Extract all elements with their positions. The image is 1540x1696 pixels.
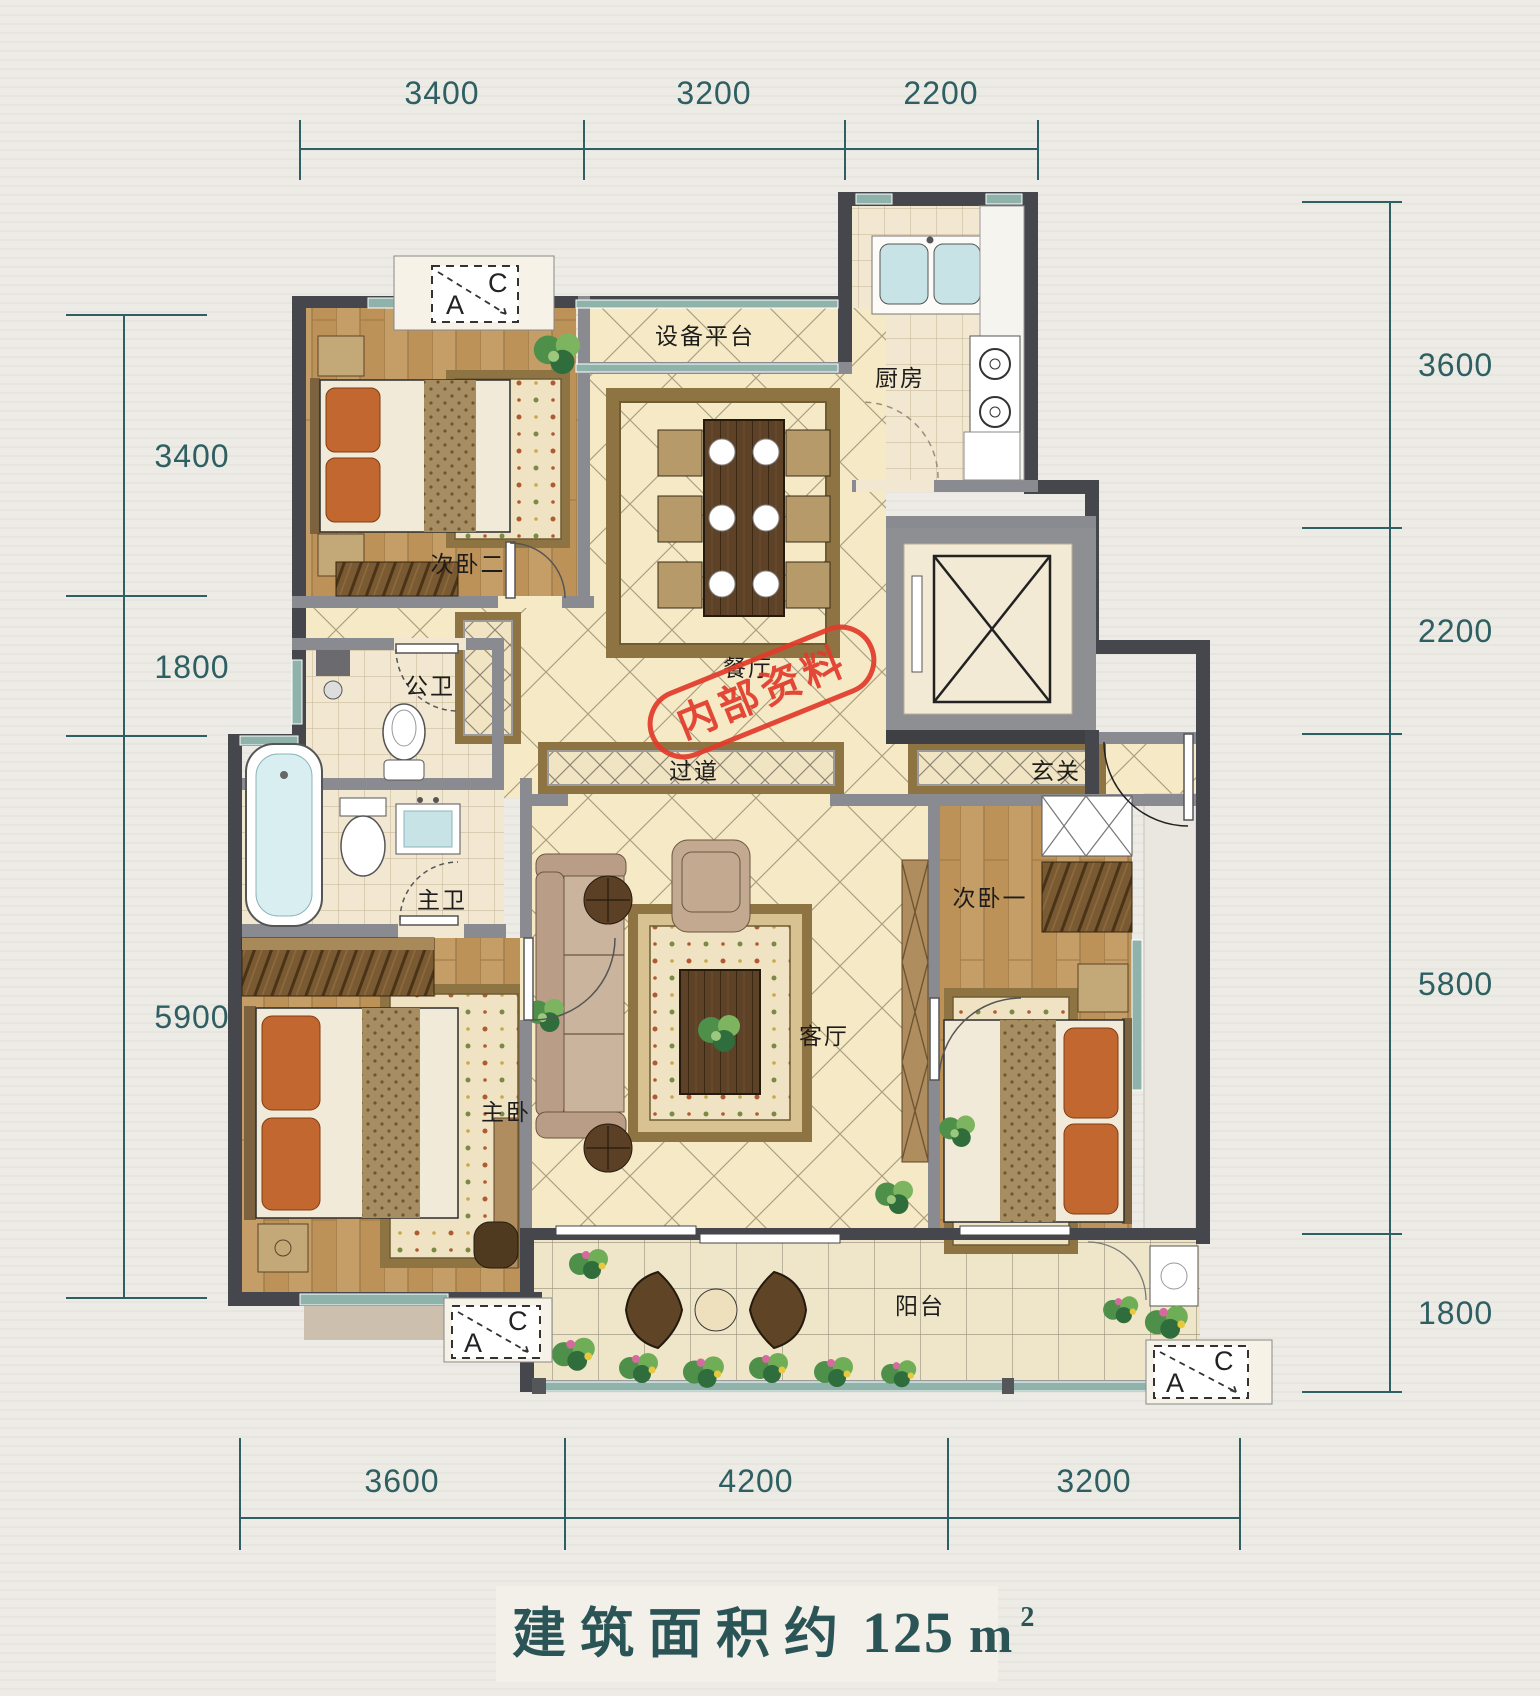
dim-bottom-1: 3600 xyxy=(364,1463,439,1499)
dim-right-2: 2200 xyxy=(1418,613,1493,649)
public-bath-window xyxy=(292,660,302,724)
room-label-bedroom1: 次卧一 xyxy=(953,886,1028,911)
master-window-sill xyxy=(304,1306,446,1340)
toilet-tank xyxy=(340,798,386,816)
ac-marker-top: A C xyxy=(394,256,554,330)
dining-chair xyxy=(658,430,702,476)
corridor-vertical-rug xyxy=(455,612,521,744)
closet xyxy=(1042,796,1132,856)
dim-top-2: 3200 xyxy=(676,75,751,111)
dim-right-3: 5800 xyxy=(1418,966,1493,1002)
shower-icon xyxy=(316,650,350,676)
nightstand xyxy=(318,336,364,376)
ac-letter-c: C xyxy=(508,1306,528,1336)
toilet-tank xyxy=(384,760,424,780)
bedroom2-door-leaf xyxy=(506,542,515,598)
kitchen-window-left xyxy=(856,194,892,204)
ac-marker-bottom-right: A C xyxy=(1146,1340,1272,1404)
room-label-kitchen: 厨房 xyxy=(875,366,925,391)
bed-runner xyxy=(1000,1020,1056,1222)
room-label-master-bedroom: 主卧 xyxy=(481,1100,531,1125)
pillow xyxy=(262,1016,320,1110)
pillow xyxy=(1064,1124,1118,1214)
ac-letter-a: A xyxy=(464,1328,482,1358)
ac-letter-a: A xyxy=(446,290,464,320)
dining-chair xyxy=(786,496,830,542)
dim-left-2: 1800 xyxy=(154,649,229,685)
sliding-door-leaf xyxy=(556,1226,696,1235)
bedroom1-window xyxy=(1132,940,1142,1090)
sink-basin xyxy=(880,244,928,304)
nightstand xyxy=(258,1224,308,1272)
tub-drain-icon xyxy=(280,771,288,779)
room-label-foyer: 玄关 xyxy=(1031,759,1081,784)
dresser xyxy=(1042,862,1132,932)
dining-chair xyxy=(658,562,702,608)
title-sup: 2 xyxy=(1020,1602,1034,1633)
sofa-back xyxy=(536,872,564,1116)
toilet xyxy=(341,816,385,876)
armchair xyxy=(672,840,750,932)
dim-bottom-2: 4200 xyxy=(718,1463,793,1499)
pillow xyxy=(262,1118,320,1210)
platform-window-bottom xyxy=(576,364,838,372)
elevator xyxy=(886,528,1096,730)
dim-top-3: 2200 xyxy=(903,75,978,111)
balcony-post-mid xyxy=(1002,1378,1014,1394)
floor-plan-page: 次卧二 设备平台 厨房 公卫 餐厅 过道 玄关 主卫 主卧 客厅 次卧一 阳台 … xyxy=(0,0,1540,1696)
stool xyxy=(474,1222,518,1268)
wardrobe-top xyxy=(242,938,434,950)
dim-right-4: 1800 xyxy=(1418,1295,1493,1331)
title-number: 125 xyxy=(862,1600,955,1665)
elevator-cab xyxy=(904,544,1072,714)
room-label-bedroom2: 次卧二 xyxy=(431,552,506,577)
bed-headboard xyxy=(310,378,320,534)
ac-letter-a: A xyxy=(1166,1368,1184,1398)
dim-top-1: 3400 xyxy=(404,75,479,111)
nightstand xyxy=(1078,964,1128,1012)
dining-furniture xyxy=(658,420,830,616)
dim-left-1: 3400 xyxy=(154,438,229,474)
ac-letter-c: C xyxy=(488,268,508,298)
sink-basin xyxy=(934,244,980,304)
ac-letter-c: C xyxy=(1214,1346,1234,1376)
balcony-post-left xyxy=(532,1378,546,1394)
bed-runner xyxy=(424,380,476,532)
room-label-public-bath: 公卫 xyxy=(405,674,455,699)
washing-machine xyxy=(1150,1246,1198,1306)
public-bath-door-leaf xyxy=(396,644,458,653)
sliding-door-leaf xyxy=(700,1234,840,1243)
sink-basin xyxy=(404,811,452,847)
toilet xyxy=(383,704,425,760)
elevator-door xyxy=(912,576,922,672)
sliding-door-leaf xyxy=(960,1226,1070,1235)
kitchen-cabinet xyxy=(964,432,1020,480)
room-label-balcony: 阳台 xyxy=(895,1294,945,1319)
room-label-equipment-platform: 设备平台 xyxy=(655,324,755,349)
master-bedroom-window xyxy=(300,1294,448,1305)
dim-left-3: 5900 xyxy=(154,999,229,1035)
dim-bottom-3: 3200 xyxy=(1056,1463,1131,1499)
title-prefix: 建筑面积约 xyxy=(512,1604,852,1664)
master-bedroom-door-leaf xyxy=(524,938,533,1020)
bed-runner xyxy=(362,1008,420,1218)
pillow xyxy=(326,458,380,522)
kitchen-window-right xyxy=(986,194,1022,204)
bay-ledge xyxy=(1144,794,1196,1240)
ac-marker-bottom-left: A C xyxy=(444,1298,552,1362)
room-label-living-room: 客厅 xyxy=(799,1024,849,1049)
title-block: 建筑面积约 125 m 2 xyxy=(496,1586,1034,1682)
stove xyxy=(970,336,1020,440)
room-label-master-bath: 主卫 xyxy=(417,888,467,913)
entry-door-leaf xyxy=(1184,734,1193,820)
balcony-table xyxy=(695,1289,737,1331)
bed-headboard xyxy=(244,1006,256,1220)
room-label-hallway: 过道 xyxy=(669,759,719,784)
platform-window-top xyxy=(576,300,838,308)
faucet-icon xyxy=(417,797,423,803)
shower-drain-icon xyxy=(324,681,342,699)
master-bath-door-leaf xyxy=(400,916,458,925)
dining-chair xyxy=(786,430,830,476)
pillow xyxy=(326,388,380,452)
dining-chair xyxy=(786,562,830,608)
floor-plan-canvas: 次卧二 设备平台 厨房 公卫 餐厅 过道 玄关 主卫 主卧 客厅 次卧一 阳台 … xyxy=(0,0,1540,1696)
dining-chair xyxy=(658,496,702,542)
faucet-icon xyxy=(433,797,439,803)
bedroom1-door-leaf xyxy=(930,998,939,1080)
dim-right-1: 3600 xyxy=(1418,347,1493,383)
pillow xyxy=(1064,1028,1118,1118)
title-unit: m xyxy=(969,1607,1012,1664)
faucet-icon xyxy=(927,237,934,244)
balcony-window-band xyxy=(536,1382,1202,1391)
